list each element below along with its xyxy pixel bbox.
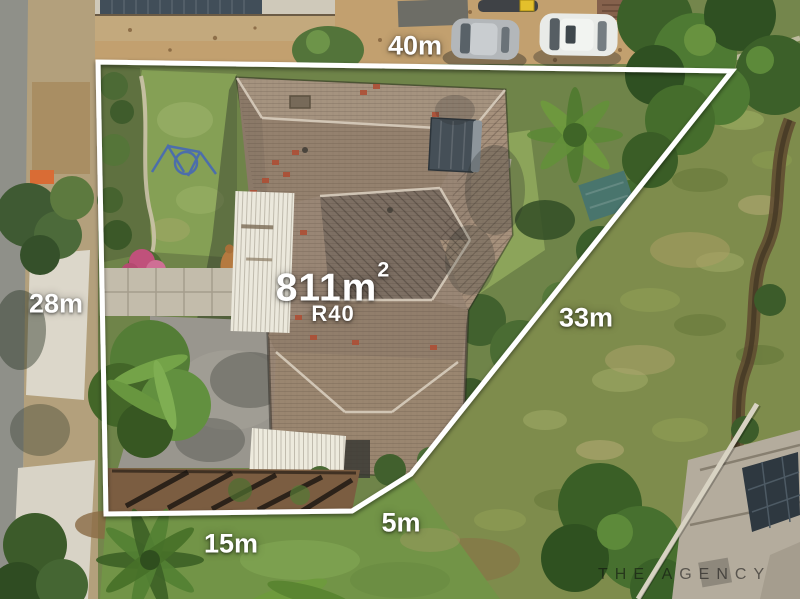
- chimney: [290, 96, 310, 108]
- carport-roof: [231, 191, 295, 333]
- pergola-area: [106, 468, 360, 513]
- parked-car-silver: [442, 18, 528, 73]
- palm-tree: [527, 87, 623, 183]
- parked-car-white: [533, 13, 622, 71]
- aerial-property-photo: 40m 28m 33m 15m 5m 811m2 R40 THE AGENCY: [0, 0, 800, 599]
- aerial-scene: [0, 0, 800, 599]
